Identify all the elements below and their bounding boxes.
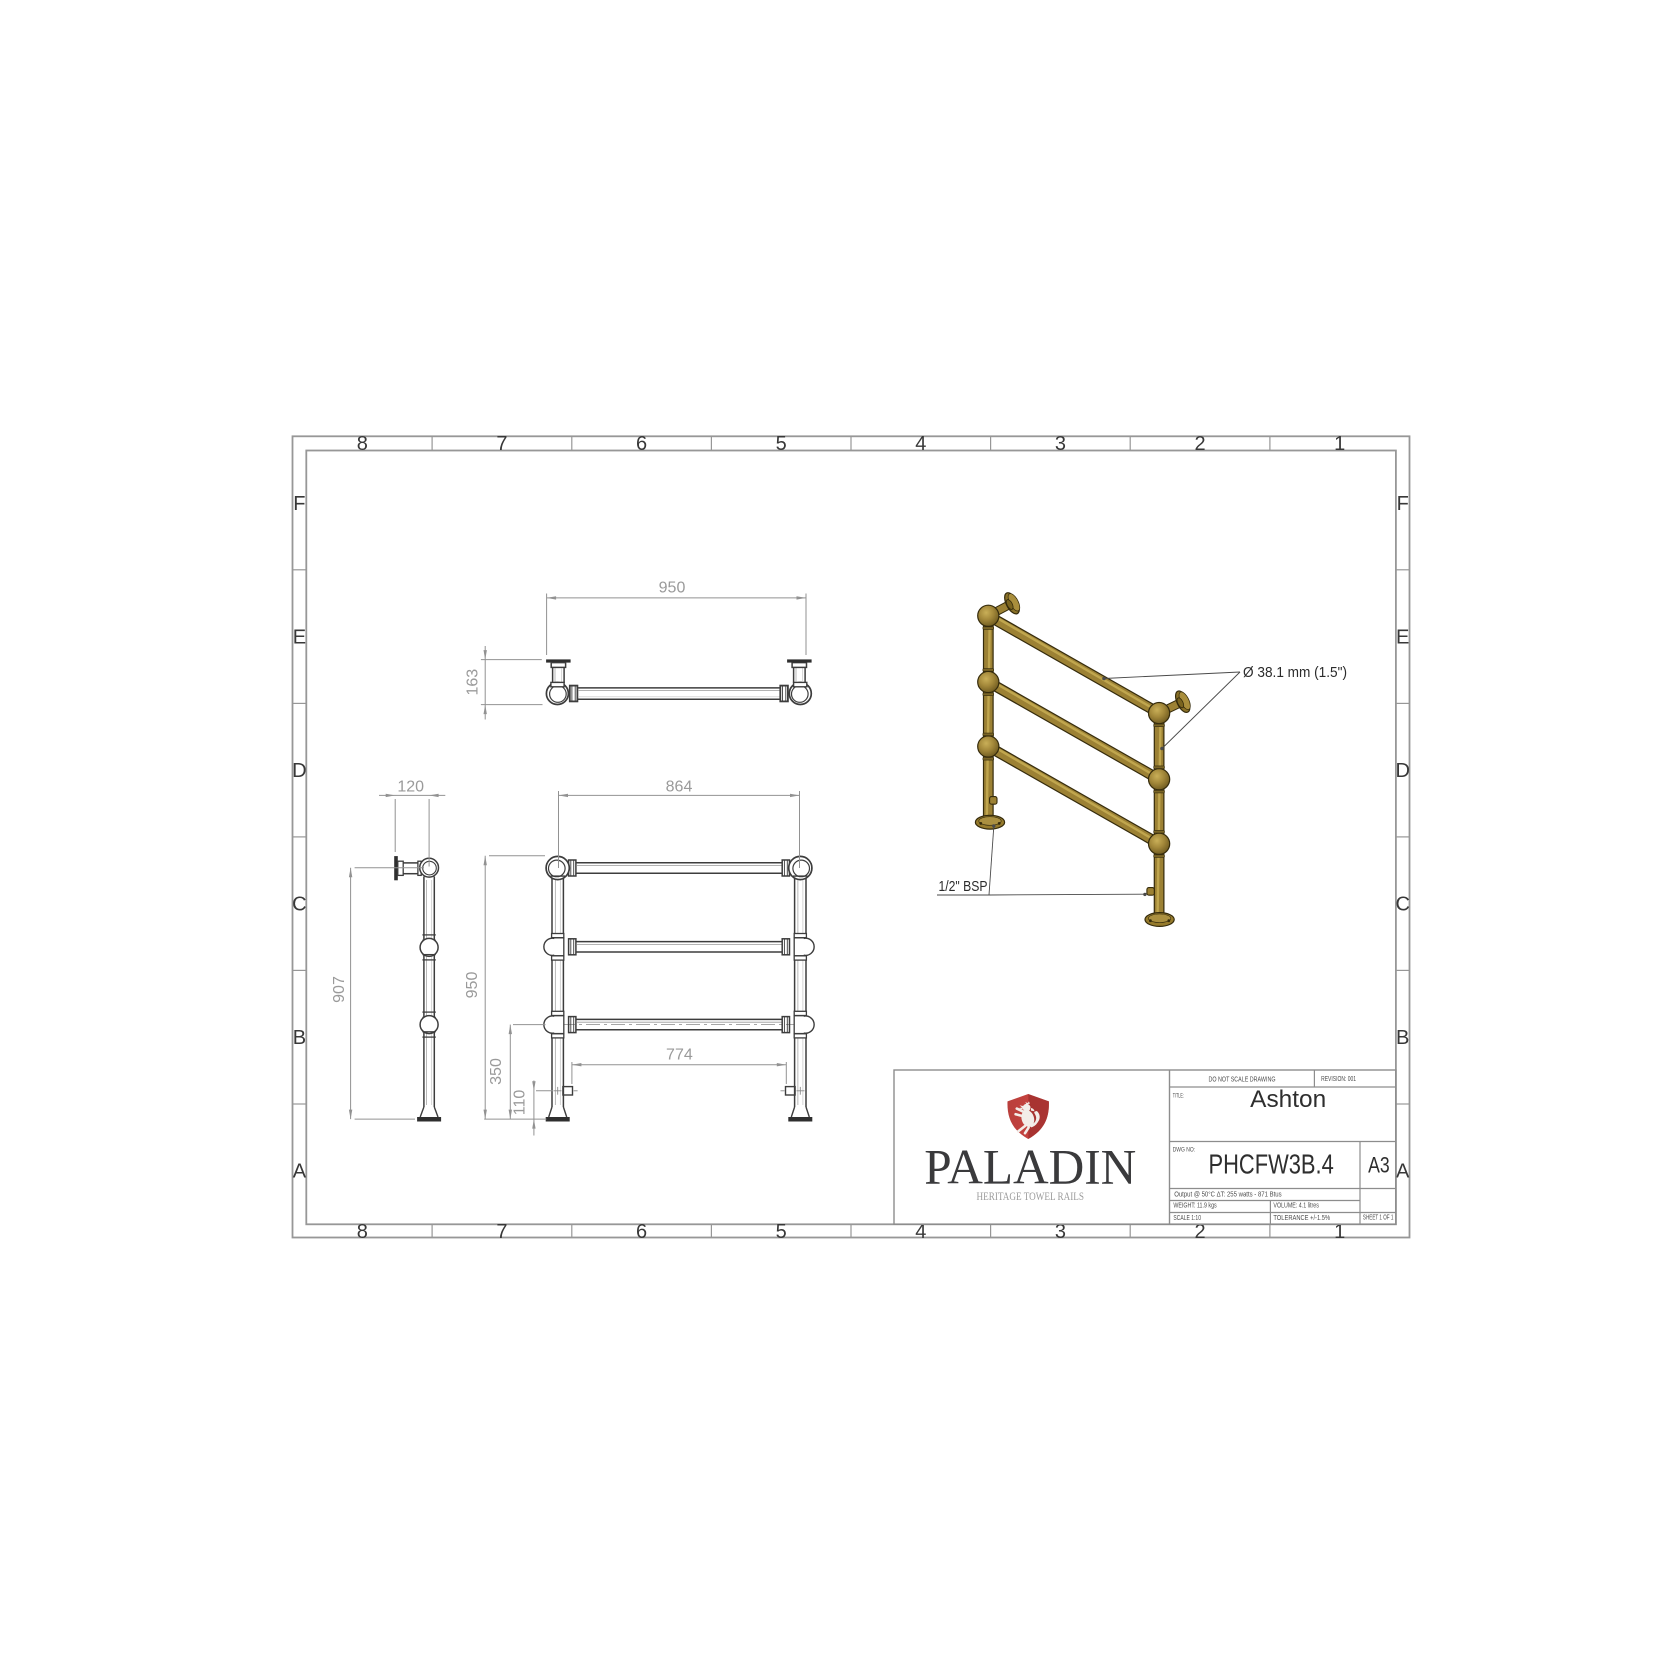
svg-text:163: 163	[464, 669, 481, 696]
svg-text:950: 950	[464, 972, 481, 999]
svg-text:HERITAGE TOWEL RAILS: HERITAGE TOWEL RAILS	[977, 1191, 1085, 1203]
svg-text:1: 1	[1334, 433, 1345, 455]
svg-text:F: F	[293, 493, 305, 515]
svg-text:PALADIN: PALADIN	[924, 1138, 1136, 1194]
svg-text:6: 6	[636, 1221, 647, 1243]
svg-text:B: B	[1396, 1027, 1409, 1049]
svg-text:1/2" BSP: 1/2" BSP	[939, 878, 988, 895]
svg-text:110: 110	[512, 1090, 529, 1116]
svg-text:DO NOT SCALE DRAWING: DO NOT SCALE DRAWING	[1209, 1075, 1276, 1084]
svg-text:A: A	[1396, 1161, 1410, 1183]
svg-text:A: A	[293, 1161, 307, 1183]
svg-text:TOLERANCE +/-1.5%: TOLERANCE +/-1.5%	[1273, 1213, 1330, 1222]
svg-text:TITLE:: TITLE:	[1173, 1093, 1184, 1100]
svg-text:Ashton: Ashton	[1250, 1086, 1326, 1113]
svg-text:B: B	[293, 1027, 306, 1049]
svg-text:D: D	[1395, 760, 1409, 782]
svg-text:3: 3	[1055, 433, 1066, 455]
svg-text:A3: A3	[1368, 1153, 1390, 1178]
svg-text:D: D	[292, 760, 306, 782]
svg-text:E: E	[293, 627, 306, 649]
svg-text:SCALE 1:10: SCALE 1:10	[1173, 1213, 1201, 1222]
svg-text:5: 5	[776, 1221, 787, 1243]
svg-text:774: 774	[666, 1047, 693, 1064]
svg-text:VOLUME: 4.1 litres: VOLUME: 4.1 litres	[1273, 1201, 1319, 1210]
svg-text:6: 6	[636, 433, 647, 455]
svg-text:8: 8	[357, 1221, 368, 1243]
svg-text:8: 8	[357, 433, 368, 455]
svg-text:2: 2	[1195, 433, 1206, 455]
svg-text:SHEET 1 OF 1: SHEET 1 OF 1	[1363, 1213, 1394, 1222]
svg-text:C: C	[1395, 894, 1409, 916]
svg-text:F: F	[1397, 493, 1409, 515]
svg-text:PHCFW3B.4: PHCFW3B.4	[1209, 1148, 1334, 1179]
svg-text:950: 950	[659, 580, 686, 597]
svg-text:7: 7	[496, 1221, 507, 1243]
svg-text:864: 864	[666, 779, 693, 796]
svg-text:120: 120	[397, 779, 424, 796]
svg-text:REVISION: 001: REVISION: 001	[1321, 1074, 1356, 1083]
svg-text:Ø 38.1 mm (1.5"): Ø 38.1 mm (1.5")	[1243, 664, 1347, 681]
svg-text:907: 907	[331, 976, 348, 1003]
svg-text:Output @ 50°C ΔT: 255 watts -: Output @ 50°C ΔT: 255 watts - 871 Btus	[1174, 1190, 1282, 1199]
svg-text:7: 7	[496, 433, 507, 455]
svg-text:350: 350	[488, 1058, 505, 1085]
svg-text:DWG NO:: DWG NO:	[1173, 1146, 1196, 1153]
svg-text:WEIGHT: 11.9 kgs: WEIGHT: 11.9 kgs	[1173, 1201, 1216, 1210]
svg-text:5: 5	[776, 433, 787, 455]
svg-text:C: C	[292, 894, 306, 916]
svg-text:E: E	[1396, 627, 1409, 649]
svg-text:4: 4	[915, 433, 926, 455]
